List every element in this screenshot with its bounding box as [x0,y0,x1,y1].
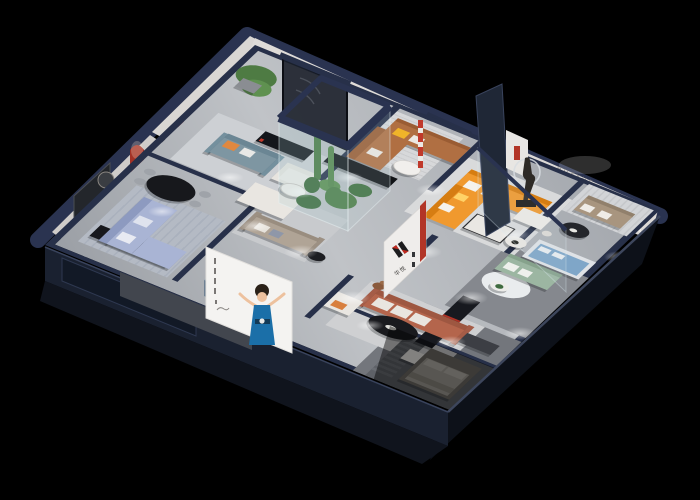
logo-wall-red-edge [420,200,426,262]
shelf-object [412,252,415,257]
front-overlays: 华悦 [0,0,700,500]
pole-stripe [418,128,423,133]
pole-stripe [418,156,423,161]
woman-face [257,292,267,302]
art-red-mark [514,146,520,160]
logo-wall: 华悦 [384,200,426,298]
showroom-render: HUAYUE [0,0,700,500]
pole-stripe [418,142,423,147]
shelf-object [412,262,415,267]
belt-ornament [259,318,264,323]
